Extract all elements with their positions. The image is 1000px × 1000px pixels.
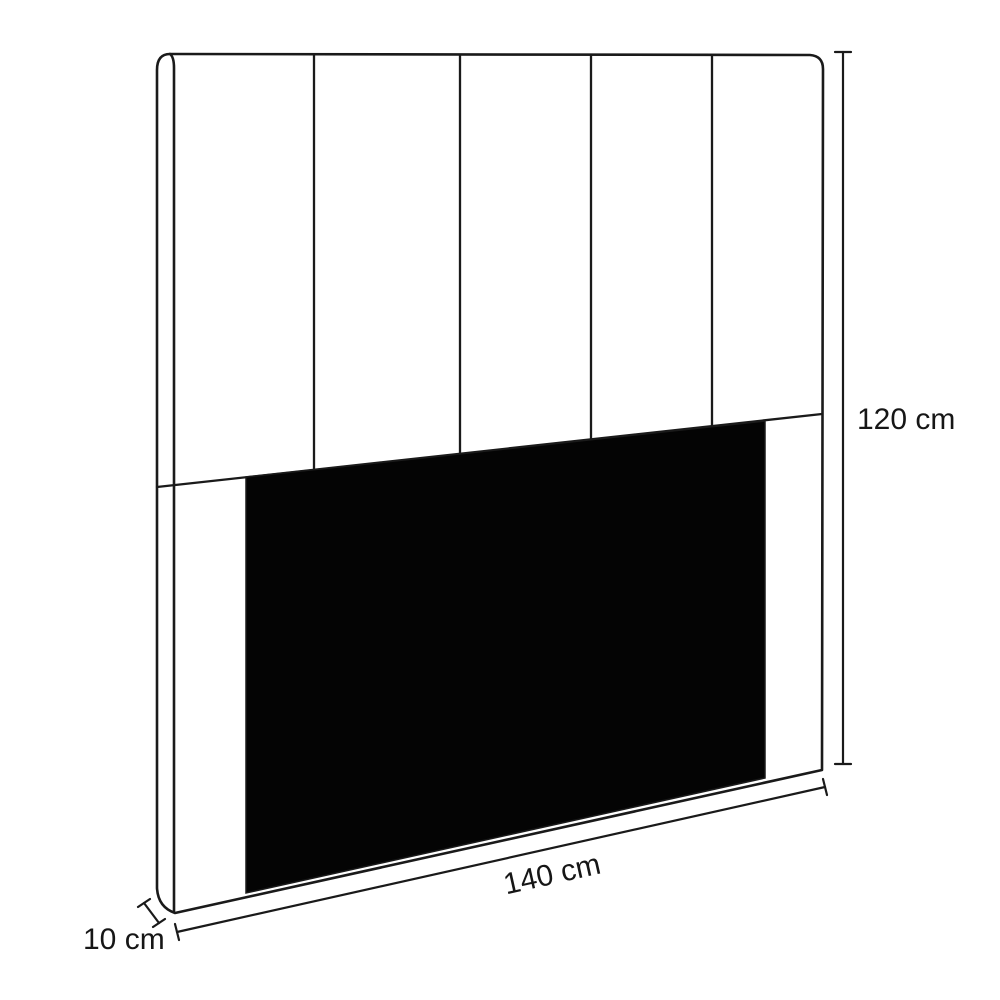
diagram-svg: 120 cm 140 cm 10 cm [0, 0, 1000, 1000]
height-label: 120 cm [857, 403, 955, 436]
height-dimension [835, 52, 851, 764]
depth-dimension-top-tick [138, 899, 150, 907]
headboard-dimension-diagram: 120 cm 140 cm 10 cm [0, 0, 1000, 1000]
depth-label: 10 cm [83, 923, 165, 956]
headboard-front-left-edge [170, 54, 174, 911]
linework [138, 52, 851, 940]
depth-dimension-line [144, 903, 159, 923]
black-lower-panel [246, 421, 765, 893]
